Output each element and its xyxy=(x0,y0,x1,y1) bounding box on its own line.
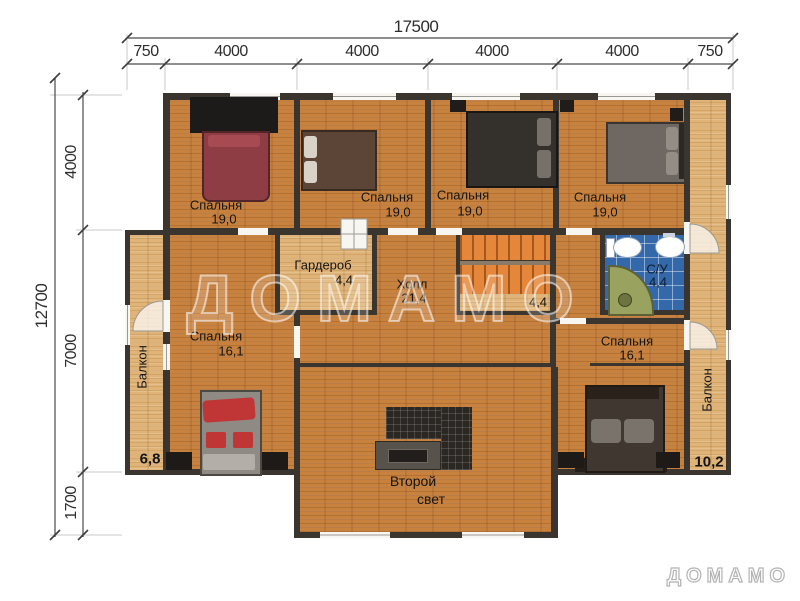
wardrobe-door-icon xyxy=(341,219,367,249)
label-b6-name: Спальня xyxy=(601,335,653,348)
label-b5-area: 16,1 xyxy=(218,345,243,358)
label-b4-area: 19,0 xyxy=(592,206,617,219)
label-b1-name: Спальня xyxy=(190,199,242,212)
label-balcony-right-area: 10,2 xyxy=(694,455,723,470)
label-b1-area: 19,0 xyxy=(211,213,236,226)
label-balcony-right-name: Балкон xyxy=(701,368,714,412)
label-balcony-left-name: Балкон xyxy=(136,345,149,389)
label-b3-area: 19,0 xyxy=(457,205,482,218)
floor-plan: 17500 750 4000 4000 4000 4000 750 12700 … xyxy=(0,0,800,601)
label-bath-area: 4,4 xyxy=(649,276,667,289)
watermark-logo: ДОМАМО xyxy=(667,565,790,588)
label-second-light-1: Второй xyxy=(390,474,436,488)
label-b2-area: 19,0 xyxy=(385,206,410,219)
label-second-light-2: свет xyxy=(417,492,445,506)
label-b6-area: 16,1 xyxy=(619,349,644,362)
label-b2-name: Спальня xyxy=(361,191,413,204)
watermark-center: ДОМАМО xyxy=(186,260,589,336)
label-b3-name: Спальня xyxy=(437,189,489,202)
label-b4-name: Спальня xyxy=(574,191,626,204)
label-balcony-left-area: 6,8 xyxy=(140,452,161,467)
